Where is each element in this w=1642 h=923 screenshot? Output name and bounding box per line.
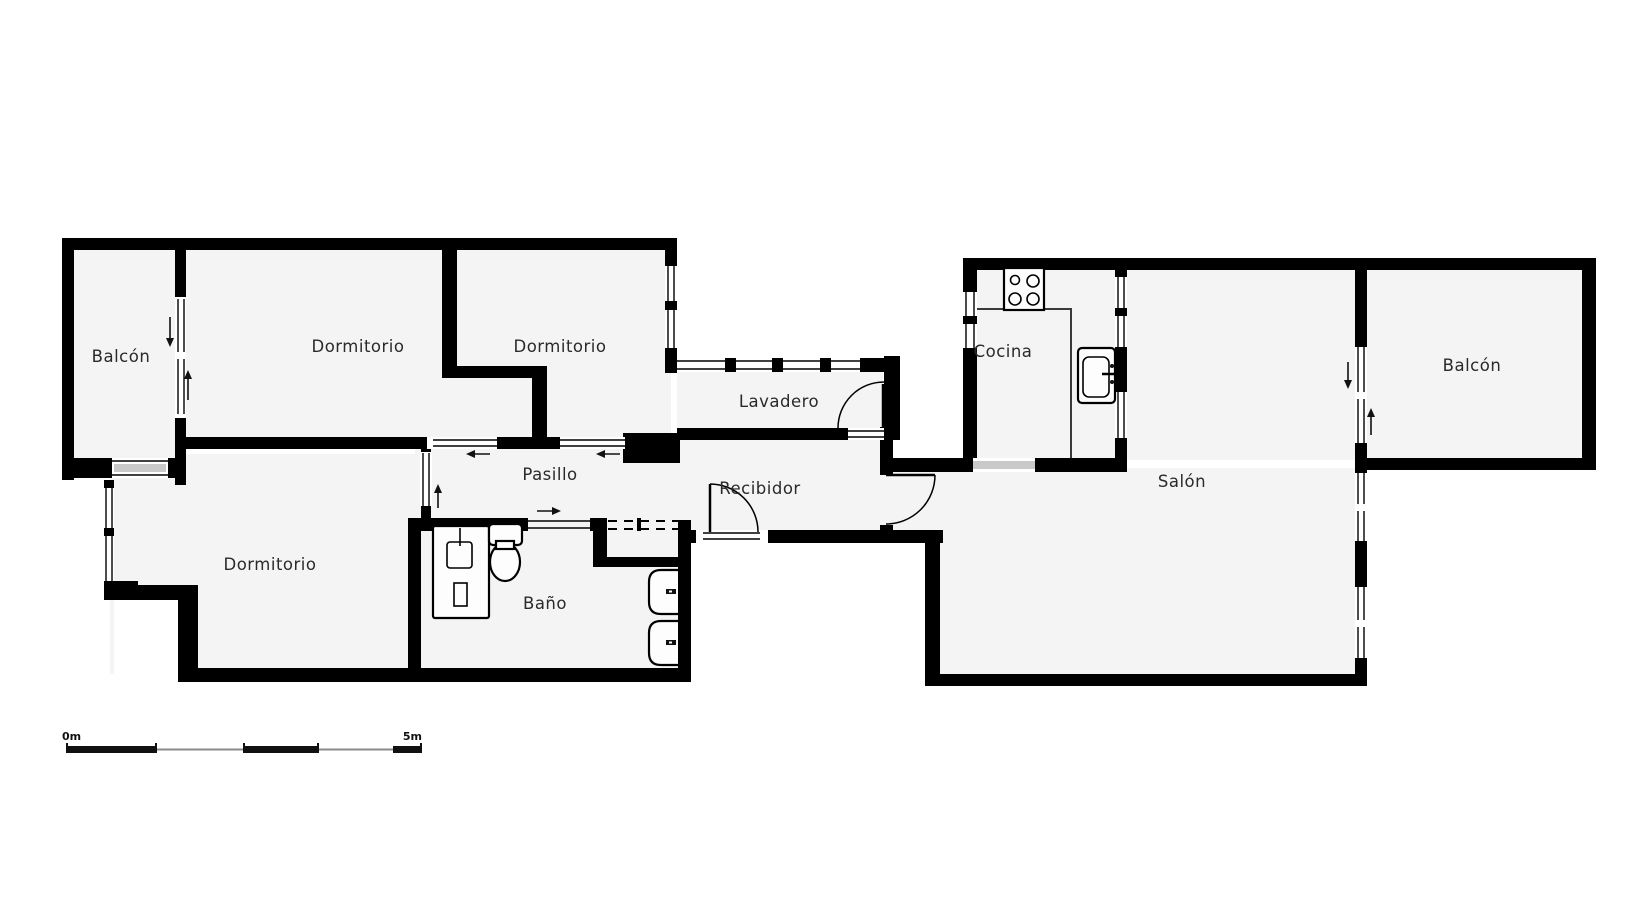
room-label-bano: Baño <box>523 594 567 613</box>
sliding-door-balcon-left <box>175 297 186 418</box>
floorplan-page: Balcón Dormitorio Dormitorio Lavadero Co… <box>0 0 1642 923</box>
washbasin-icon <box>649 621 678 665</box>
window-dormitorio3-left <box>104 488 114 581</box>
washbasin-icon <box>649 570 678 614</box>
floor-salon-upper <box>1127 270 1357 460</box>
floorplan-drawing: Balcón Dormitorio Dormitorio Lavadero Co… <box>0 0 1642 923</box>
room-label-balcon-right: Balcón <box>1443 356 1502 375</box>
room-label-dormitorio-1: Dormitorio <box>312 337 405 356</box>
door-opening-lavadero <box>848 428 884 440</box>
room-label-salon: Salón <box>1158 472 1206 491</box>
window-cocina-left <box>963 292 977 348</box>
shower-icon <box>433 526 489 618</box>
scale-end-label: 5m <box>403 730 422 743</box>
kitchen-sink-icon <box>1078 348 1118 403</box>
room-label-recibidor: Recibidor <box>719 479 800 498</box>
room-label-lavadero: Lavadero <box>739 392 819 411</box>
room-label-dormitorio-2: Dormitorio <box>514 337 607 356</box>
room-label-pasillo: Pasillo <box>522 465 577 484</box>
room-label-cocina: Cocina <box>974 342 1033 361</box>
floor-closet-niche <box>607 531 678 558</box>
window-balcon-left-bottom <box>112 458 168 478</box>
sliding-door-dormitorio3 <box>420 452 432 506</box>
window-dormitorio2-right <box>665 266 677 348</box>
sliding-door-balcon-right <box>1355 347 1367 443</box>
room-label-dormitorio-3: Dormitorio <box>224 555 317 574</box>
toilet-icon <box>489 524 522 581</box>
room-label-balcon-left: Balcón <box>92 347 151 366</box>
floor-salon-lower <box>938 468 1357 676</box>
sliding-door-dormitorio1 <box>427 437 497 449</box>
door-opening-entry <box>696 530 768 543</box>
scale-bar: 0m 5m <box>62 730 422 753</box>
sliding-door-dormitorio2 <box>560 437 625 449</box>
scale-start-label: 0m <box>62 730 81 743</box>
window-lavadero-top <box>677 358 884 372</box>
stove-icon <box>1004 268 1044 310</box>
opening-cocina-salon <box>973 458 1035 472</box>
